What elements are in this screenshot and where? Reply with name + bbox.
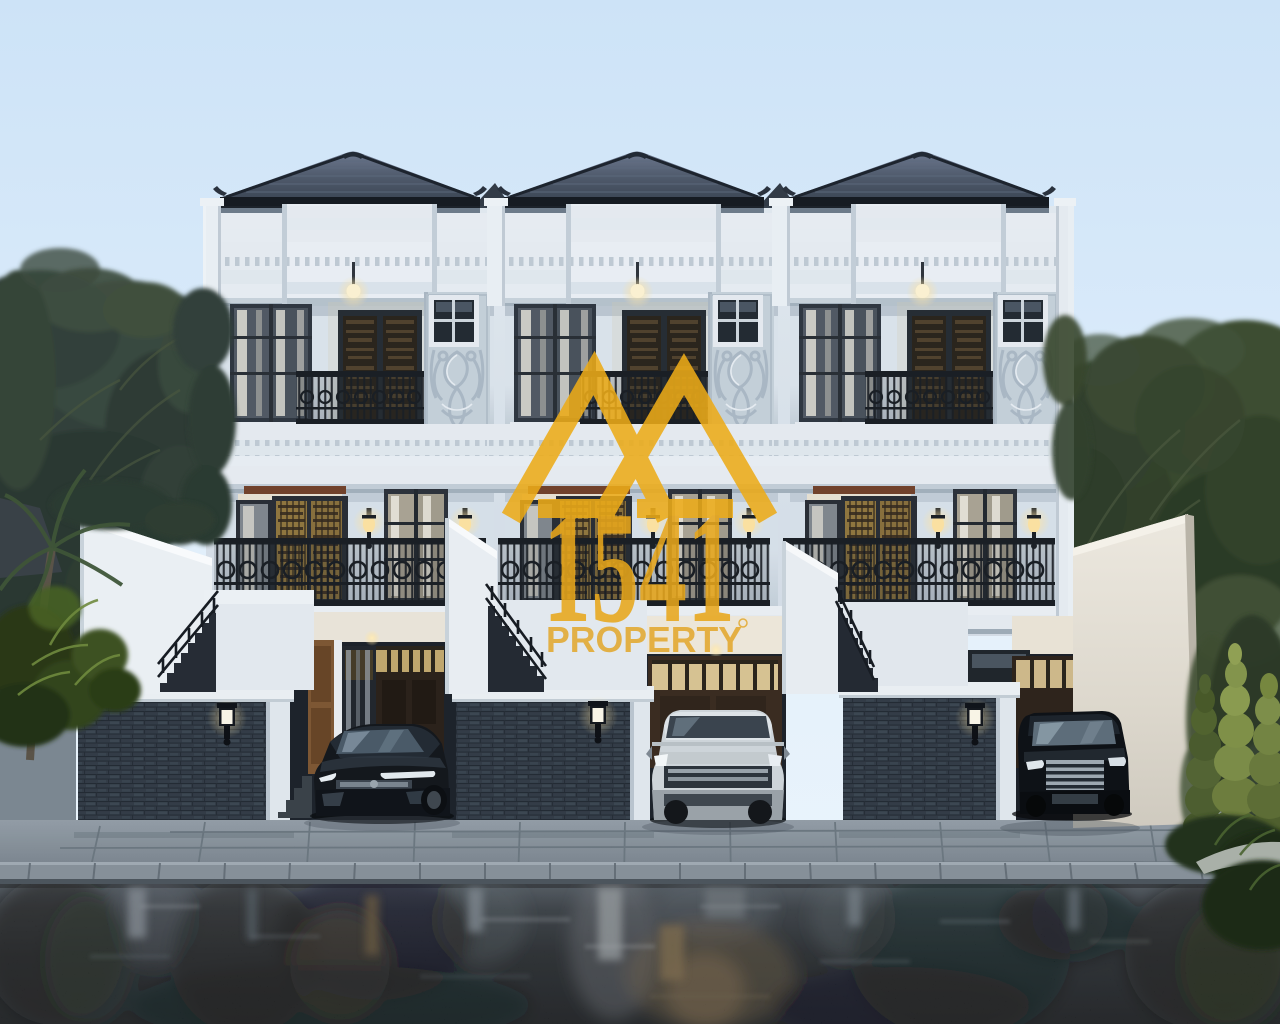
svg-text:PROPERTY: PROPERTY <box>546 619 742 660</box>
